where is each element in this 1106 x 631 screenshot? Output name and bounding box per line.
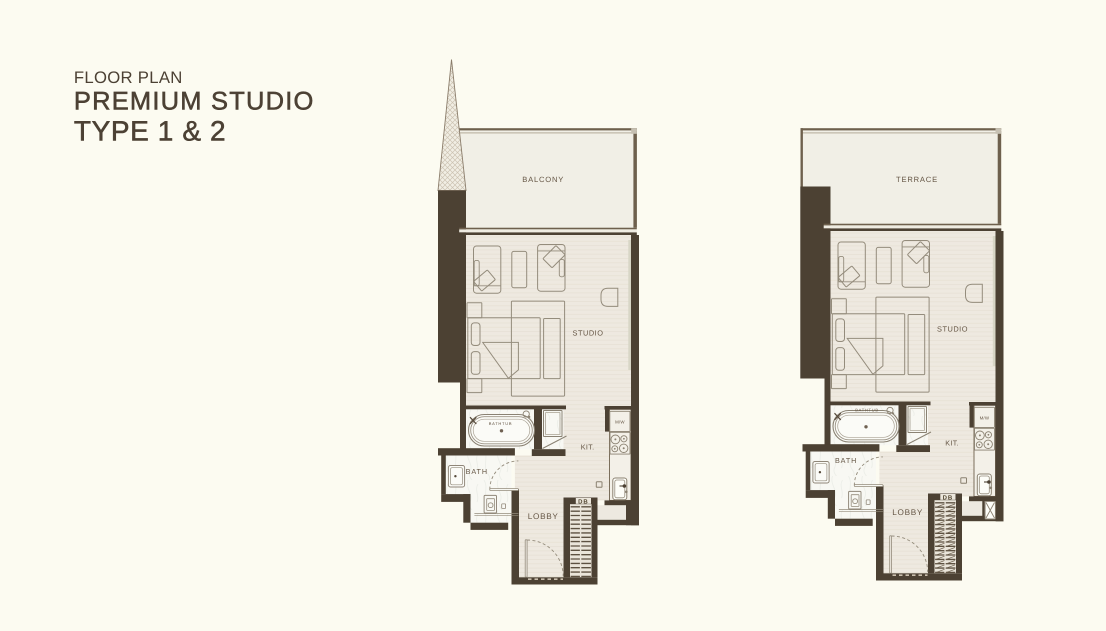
svg-text:KIT.: KIT. [581,443,595,452]
svg-text:M/W: M/W [615,420,625,425]
svg-text:STUDIO: STUDIO [937,324,968,333]
svg-text:BATH: BATH [835,456,857,465]
svg-text:STUDIO: STUDIO [573,328,604,337]
svg-text:BATHTUB: BATHTUB [489,421,513,426]
svg-text:BATHTUB: BATHTUB [855,407,879,412]
svg-text:LOBBY: LOBBY [892,508,923,517]
svg-text:M/W: M/W [980,416,990,421]
svg-text:BALCONY: BALCONY [522,175,564,184]
svg-text:TYPE 1 & 2: TYPE 1 & 2 [74,116,226,147]
svg-text:DB: DB [578,498,589,505]
svg-text:FLOOR PLAN: FLOOR PLAN [74,68,183,87]
svg-text:DB: DB [943,494,954,501]
svg-text:PREMIUM STUDIO: PREMIUM STUDIO [74,87,315,115]
svg-text:LOBBY: LOBBY [528,512,559,521]
svg-text:BATH: BATH [466,467,488,476]
svg-text:TERRACE: TERRACE [896,175,938,184]
svg-text:KIT.: KIT. [945,439,959,448]
